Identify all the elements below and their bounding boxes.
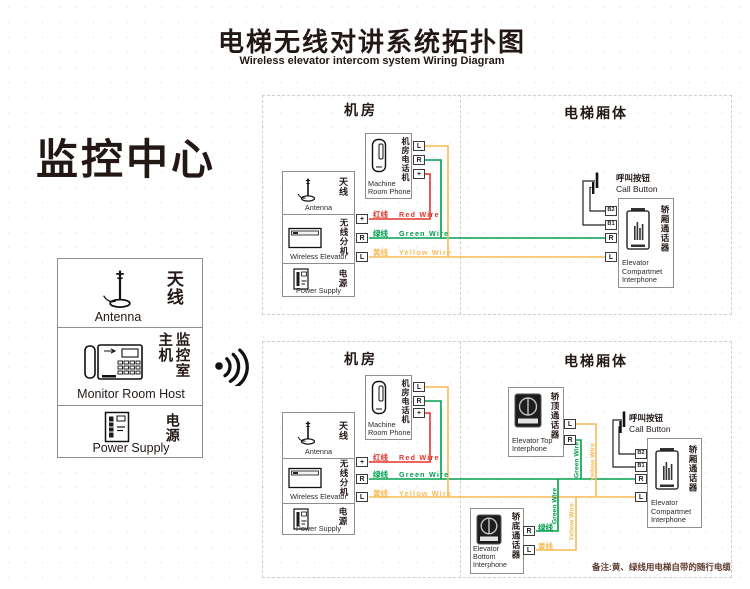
terminal-l-comp-bottom: L xyxy=(635,492,647,502)
car-body-label-top: 电梯厢体 xyxy=(460,103,732,123)
compartment-interphone-box-top: 轿厢通话器 Elevator Compartmet Interphone xyxy=(618,198,674,288)
divider xyxy=(283,263,354,264)
wiring-diagram-page: 电梯无线对讲系统拓扑图 Wireless elevator intercom s… xyxy=(0,0,750,589)
station-power-en-bottom: Power Supply xyxy=(283,525,354,533)
red-wire-label-bottom: 红线Red Wire xyxy=(373,452,440,463)
terminal-b2-comp-top: B2 xyxy=(605,206,617,216)
terminal-l-phone-bottom: L xyxy=(413,382,425,392)
compartment-interphone-icon xyxy=(625,206,651,254)
machine-room-label-bottom: 机房 xyxy=(262,349,460,369)
call-button-icon-top xyxy=(593,173,597,195)
wireless-signal-icon xyxy=(207,342,251,386)
monitor-center-heading: 监控中心 xyxy=(36,126,216,187)
green-wire-en: Green Wire xyxy=(399,229,449,238)
green-wire-short-label: 绿线 xyxy=(538,522,553,533)
station-wireless-en-top: Wireless Elevator xyxy=(283,253,354,261)
monitor-antenna-label-en: Antenna xyxy=(58,310,178,324)
phone-label-en-line2: Room Phone xyxy=(368,188,411,196)
bottom-interphone-en-line2: Interphone xyxy=(473,562,523,570)
terminal-l-station-bottom: L xyxy=(356,492,368,502)
station-power-en-top: Power Supply xyxy=(283,287,354,295)
yellow-wire-top-phone xyxy=(424,146,448,257)
handset-icon xyxy=(369,138,389,176)
yellow-wire-vertical-label-top: Yellow Wire xyxy=(590,443,597,481)
red-wire-zh: 红线 xyxy=(373,210,388,219)
red-wire-en: Red Wire xyxy=(399,210,440,219)
phone-label-zh-bottom: 机房电话机 xyxy=(401,379,409,424)
compartment-label-en-bottom: Elevator Compartmet Interphone xyxy=(651,499,691,524)
call-button-label-en-bottom: Call Button xyxy=(629,424,671,434)
call-button-label-zh-top: 呼叫按钮 xyxy=(616,172,650,184)
terminal-r-comp-top: R xyxy=(605,233,617,243)
yellow-wire-short-label: 黄线 xyxy=(538,541,553,552)
host-label-zh-col-right: 监控室 xyxy=(173,332,188,379)
page-subtitle: Wireless elevator intercom system Wiring… xyxy=(162,55,582,67)
desk-phone-icon xyxy=(82,337,144,383)
compartment-en-line3: Interphone xyxy=(622,276,662,284)
top-interphone-label-en: Elevator Top Interphone xyxy=(512,437,552,453)
terminal-b1-comp-bottom: B1 xyxy=(635,462,647,472)
yellow-wire-label-top: 黄线Yellow Wire xyxy=(373,247,452,258)
terminal-r-top-interphone: R xyxy=(564,435,576,445)
monitor-antenna-label-zh: 天线 xyxy=(164,270,182,306)
compartment-en-line3: Interphone xyxy=(651,516,691,524)
yellow-wire-zh: 黄线 xyxy=(373,489,388,498)
green-wire-label-bottom: 绿线Green Wire xyxy=(373,469,449,480)
green-wire-vertical-label-top: Green Wire xyxy=(574,442,581,478)
bottom-interphone-en-line1: Elevator Bottom xyxy=(473,546,523,562)
wireless-unit-icon xyxy=(288,225,322,249)
terminal-r-comp-bottom: R xyxy=(635,474,647,484)
host-label-zh-col-left: 主机 xyxy=(156,332,171,379)
terminal-l-phone-top: L xyxy=(413,141,425,151)
phone-label-zh-top: 机房电话机 xyxy=(401,137,409,182)
compartment-interphone-icon xyxy=(654,446,680,494)
terminal-r-phone-top: R xyxy=(413,155,425,165)
yellow-wire-zh: 黄线 xyxy=(373,248,388,257)
phone-label-en-line2: Room Phone xyxy=(368,429,411,437)
yellow-wire-en: Yellow Wire xyxy=(399,248,452,257)
compartment-label-zh-bottom: 轿厢通话器 xyxy=(688,445,697,493)
speaker-icon xyxy=(514,393,542,433)
monitor-power-label-en: Power Supply xyxy=(58,441,204,455)
car-body-label-bottom: 电梯厢体 xyxy=(460,351,732,371)
compartment-label-en-top: Elevator Compartmet Interphone xyxy=(622,259,662,284)
machine-room-label-top: 机房 xyxy=(262,100,460,120)
divider xyxy=(283,503,354,504)
top-interphone-label-zh: 轿顶通话器 xyxy=(550,392,559,440)
terminal-plus-station-top: + xyxy=(356,214,368,224)
yellow-wire-vertical-label-bottom: Yellow Wire xyxy=(569,503,576,541)
terminal-b1-comp-top: B1 xyxy=(605,220,617,230)
compartment-label-zh-top: 轿厢通话器 xyxy=(660,205,669,253)
call-button-label-zh-bottom: 呼叫按钮 xyxy=(629,412,663,424)
machine-room-phone-box-top: 机房电话机 Machine Room Phone xyxy=(365,133,412,199)
machine-room-phone-box-bottom: 机房电话机 Machine Room Phone xyxy=(365,375,412,440)
terminal-plus-phone-top: + xyxy=(413,169,425,179)
monitor-power-label-zh: 电源 xyxy=(165,413,180,443)
divider xyxy=(58,405,202,406)
terminal-l-top-interphone: L xyxy=(564,419,576,429)
terminal-l-comp-top: L xyxy=(605,252,617,262)
station-box-top: 天线 Antenna 无线分机 Wireless Elevator 电源 Pow… xyxy=(282,171,355,297)
terminal-b2-comp-bottom: B2 xyxy=(635,449,647,459)
call-button-icon-bottom xyxy=(621,412,625,434)
yellow-wire-label-bottom: 黄线Yellow Wire xyxy=(373,488,452,499)
elevator-top-interphone-box: 轿顶通话器 Elevator Top Interphone xyxy=(508,387,564,457)
bottom-interphone-label-en: Elevator Bottom Interphone xyxy=(473,546,523,570)
station-antenna-en-top: Antenna xyxy=(283,204,354,212)
phone-label-en-bottom: Machine Room Phone xyxy=(368,421,411,437)
station-antenna-zh-bottom: 天线 xyxy=(338,421,347,441)
terminal-l-bottom-interphone: L xyxy=(523,545,535,555)
terminal-r-station-top: R xyxy=(356,233,368,243)
green-wire-zh: 绿线 xyxy=(373,229,388,238)
yellow-wire-en: Yellow Wire xyxy=(399,489,452,498)
monitor-center-box: 天线 Antenna 主机 监控室 Monitor Room Host xyxy=(57,258,203,458)
antenna-icon xyxy=(295,418,321,448)
terminal-r-phone-bottom: R xyxy=(413,396,425,406)
elevator-bottom-interphone-box: 轿底通话器 Elevator Bottom Interphone xyxy=(470,508,524,574)
green-wire-vertical-label-bottom: Green Wire xyxy=(552,488,559,524)
divider xyxy=(58,327,202,328)
terminal-plus-station-bottom: + xyxy=(356,457,368,467)
wireless-unit-icon xyxy=(288,465,322,489)
note-text: 备注:黄、绿线用电梯自带的随行电缆 xyxy=(592,561,731,573)
monitor-host-label-zh: 主机 监控室 xyxy=(156,332,188,379)
terminal-r-station-bottom: R xyxy=(356,474,368,484)
call-button-label-en-top: Call Button xyxy=(616,184,658,194)
station-wireless-en-bottom: Wireless Elevator xyxy=(283,493,354,501)
antenna-icon xyxy=(96,263,144,311)
green-wire-en: Green Wire xyxy=(399,470,449,479)
station-antenna-zh-top: 天线 xyxy=(338,177,347,197)
top-interphone-en-line2: Interphone xyxy=(512,445,552,453)
green-wire-top-phone xyxy=(424,160,441,238)
antenna-icon xyxy=(295,175,321,205)
red-wire-zh: 红线 xyxy=(373,453,388,462)
station-wireless-zh-top: 无线分机 xyxy=(339,218,348,256)
station-box-bottom: 天线 Antenna 无线分机 Wireless Elevator 电源 Pow… xyxy=(282,412,355,535)
green-wire-label-top: 绿线Green Wire xyxy=(373,228,449,239)
page-title: 电梯无线对讲系统拓扑图 xyxy=(162,22,582,59)
monitor-host-label-en: Monitor Room Host xyxy=(58,387,204,401)
red-wire-label-top: 红线Red Wire xyxy=(373,209,440,220)
station-antenna-en-bottom: Antenna xyxy=(283,448,354,456)
yellow-wire-bottom-phone xyxy=(424,387,448,497)
compartment-interphone-box-bottom: 轿厢通话器 Elevator Compartmet Interphone xyxy=(647,438,702,528)
terminal-l-station-top: L xyxy=(356,252,368,262)
terminal-plus-phone-bottom: + xyxy=(413,408,425,418)
divider xyxy=(283,214,354,215)
green-wire-zh: 绿线 xyxy=(373,470,388,479)
red-wire-en: Red Wire xyxy=(399,453,440,462)
power-supply-icon xyxy=(104,411,130,443)
phone-label-en-top: Machine Room Phone xyxy=(368,180,411,196)
terminal-r-bottom-interphone: R xyxy=(523,526,535,536)
handset-icon xyxy=(369,380,389,418)
